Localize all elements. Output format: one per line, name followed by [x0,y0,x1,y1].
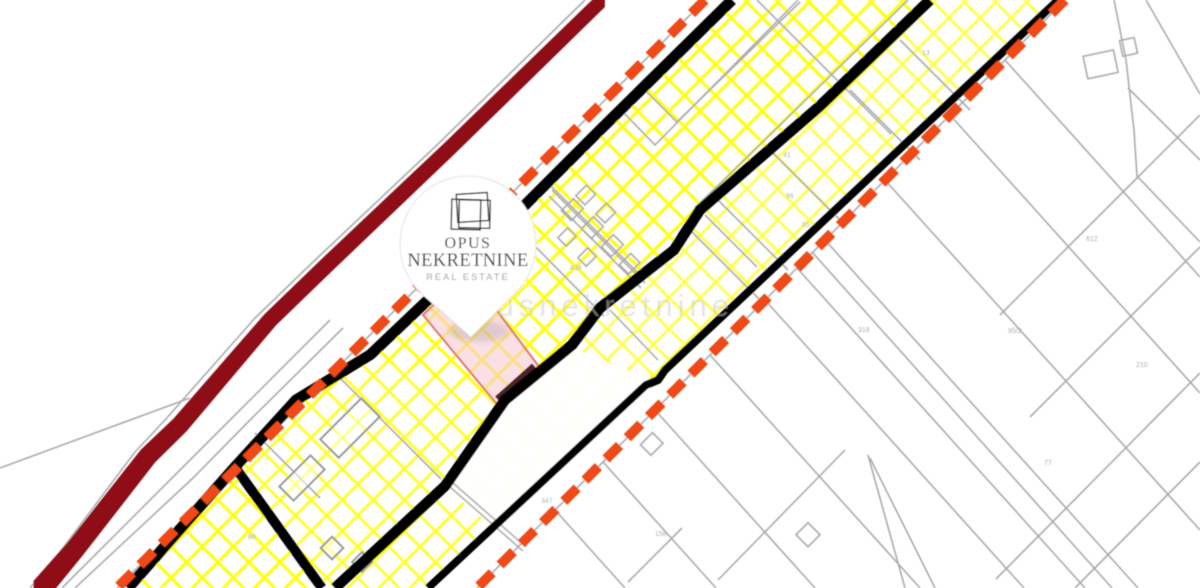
svg-text:OPUS: OPUS [445,235,492,252]
svg-text:NEKRETNINE: NEKRETNINE [407,251,528,271]
svg-text:88: 88 [248,534,256,541]
svg-text:318: 318 [858,327,870,334]
svg-text:347: 347 [541,498,553,505]
svg-text:96: 96 [786,193,794,200]
svg-text:158: 158 [655,531,667,538]
svg-text:210: 210 [1136,362,1148,369]
svg-text:13: 13 [922,50,930,57]
svg-text:41: 41 [783,152,791,159]
svg-text:55: 55 [802,222,810,229]
svg-text:77: 77 [1044,460,1052,467]
svg-text:612: 612 [1086,236,1098,243]
svg-text:438: 438 [570,265,582,272]
svg-text:95/2: 95/2 [1008,328,1022,335]
svg-text:REAL ESTATE: REAL ESTATE [426,272,510,282]
